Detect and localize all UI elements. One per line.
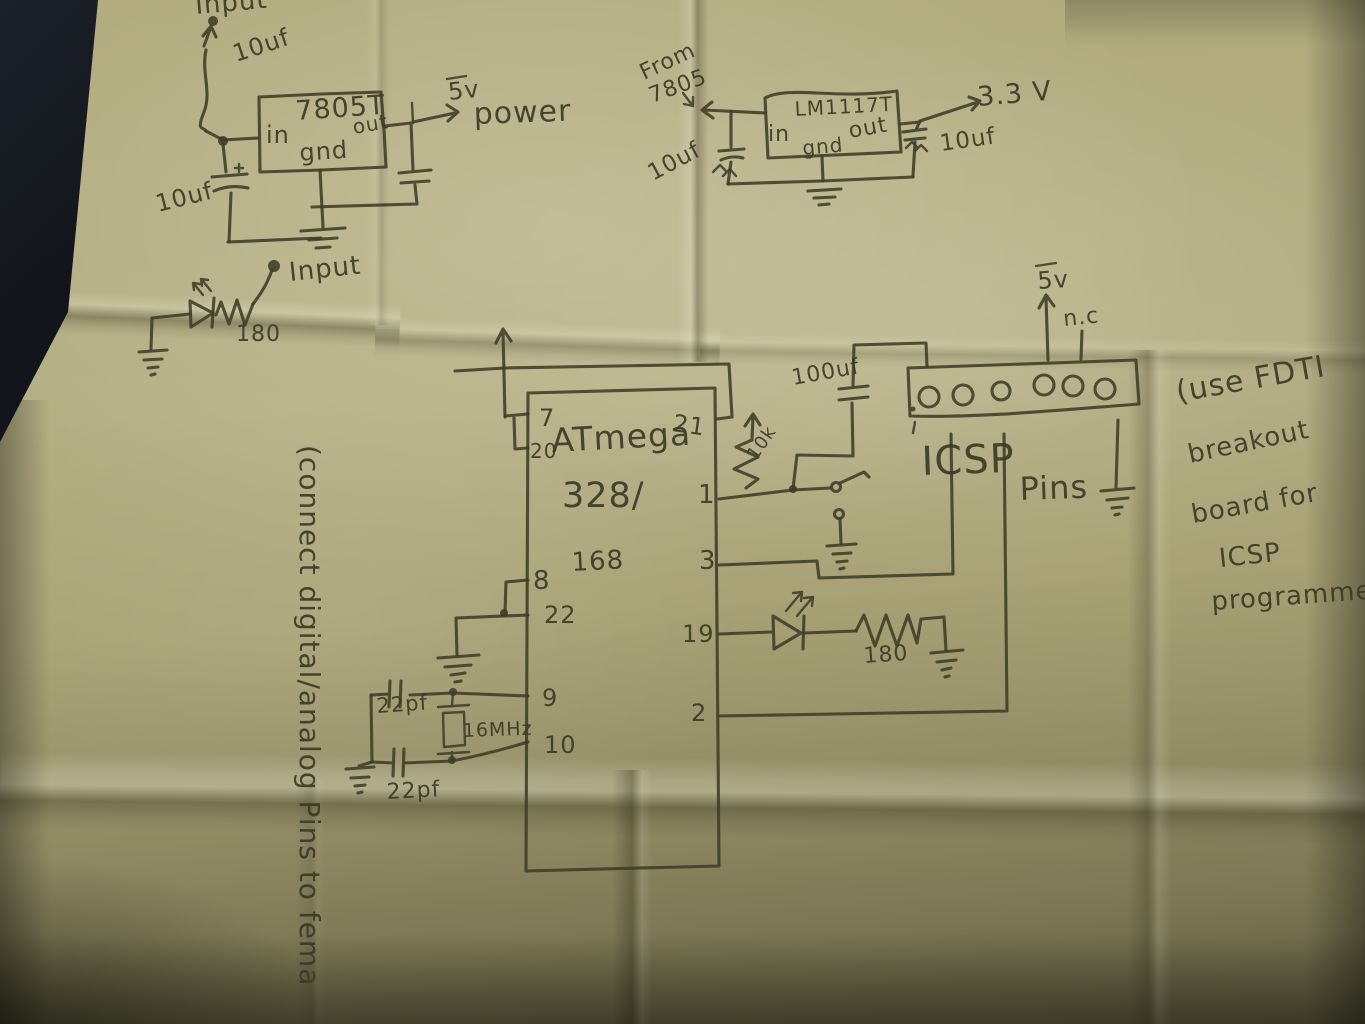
label-icsp-line2: Pins (1019, 468, 1089, 508)
label-icsp-line1: ICSP (921, 436, 1016, 485)
mcu-pin2: 2 (691, 699, 707, 727)
mcu-atmega: 7 20 21 1 3 19 2 8 22 9 10 ATmega 328/ 1… (346, 329, 732, 871)
hand-drawn-schematic: Input 10uf 7805T in gnd out 5v power 10u… (0, 0, 1365, 1024)
mcu-name-line3: 168 (571, 545, 625, 578)
label-icsp-5v: 5v (1036, 265, 1069, 295)
note-right-line1: (use FDTI (1173, 349, 1328, 410)
note-right: (use FDTI breakout board for ICSP progra… (1173, 349, 1365, 617)
label-7805-in: in (266, 121, 290, 149)
label-lm1117-gnd: gnd (801, 132, 844, 159)
photo-canvas: Input 10uf 7805T in gnd out 5v power 10u… (0, 0, 1365, 1024)
label-lm1117-out: out (847, 113, 890, 144)
label-cap-10uf-top: 10uf (229, 23, 293, 68)
regulator-lm1117-circuit: From 7805 LM1117T in gnd out 3.3 V 10uf … (636, 38, 1053, 205)
mcu-pin22: 22 (544, 601, 577, 629)
mcu-pin19: 19 (682, 620, 715, 648)
label-input-top: Input (194, 0, 269, 21)
label-resistor-180-input: 180 (236, 322, 281, 347)
note-right-line2: breakout (1185, 415, 1312, 470)
input-led-circuit: Input 180 (139, 251, 363, 375)
icsp-header: ICSP Pins 5v n.c (908, 263, 1139, 515)
label-crystal: 16MHz (462, 718, 533, 742)
mcu-pin9: 9 (542, 684, 558, 712)
label-lm1117-in: in (768, 122, 790, 147)
label-cap-10uf-in: 10uf (644, 137, 706, 186)
reset-button-circuit: 10k 100uf (719, 343, 927, 569)
label-input-mid: Input (288, 251, 363, 288)
label-7805-gnd: gnd (298, 136, 349, 167)
label-cap-100uf: 100uf (790, 354, 862, 391)
label-resistor-180-led: 180 (863, 641, 910, 669)
mcu-name-line1: ATmega (550, 414, 692, 460)
label-icsp-nc: n.c (1062, 303, 1100, 332)
note-right-line4: ICSP (1218, 538, 1283, 574)
note-right-line5: programmer) (1210, 574, 1365, 617)
mcu-pin8: 8 (533, 566, 551, 596)
mcu-pin10: 10 (544, 731, 577, 759)
label-power: power (473, 94, 572, 132)
regulator-7805-circuit: Input 10uf 7805T in gnd out 5v power 10u… (153, 0, 572, 248)
mcu-pin1: 1 (698, 480, 716, 510)
mcu-name-line2: 328/ (562, 476, 645, 516)
label-cap-22pf-2: 22pf (386, 777, 441, 805)
label-cap-10uf-out: 10uf (938, 123, 997, 157)
note-left-rotated: (connect digital/analog Pins to fema (293, 445, 326, 986)
note-right-line3: board for (1189, 478, 1320, 530)
label-cap-22pf-1: 22pf (376, 690, 429, 718)
label-3v3: 3.3 V (976, 76, 1053, 113)
label-cap-10uf-bottom: 10uf (153, 177, 216, 218)
note-left: (connect digital/analog Pins to fema (293, 445, 326, 986)
status-led-circuit: 180 (719, 592, 963, 677)
mcu-pin3: 3 (699, 546, 717, 576)
label-pullup-10k: 10k (743, 422, 781, 464)
